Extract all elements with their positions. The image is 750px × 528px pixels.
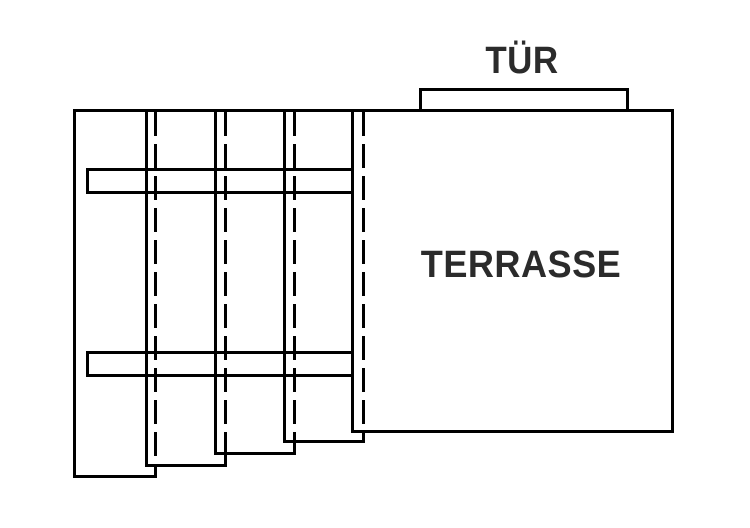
substructure-rail-bottom bbox=[86, 351, 360, 377]
hidden-edge-line-3 bbox=[293, 112, 296, 440]
hidden-edge-line-2 bbox=[224, 112, 227, 452]
terrace-label: TERRASSE bbox=[331, 246, 711, 284]
door-rect bbox=[419, 88, 629, 112]
substructure-rail-top bbox=[86, 168, 360, 194]
door-label: TÜR bbox=[430, 42, 614, 80]
terrace-plan-diagram: TÜR TERRASSE bbox=[0, 0, 750, 528]
hidden-edge-line-1 bbox=[154, 112, 157, 464]
